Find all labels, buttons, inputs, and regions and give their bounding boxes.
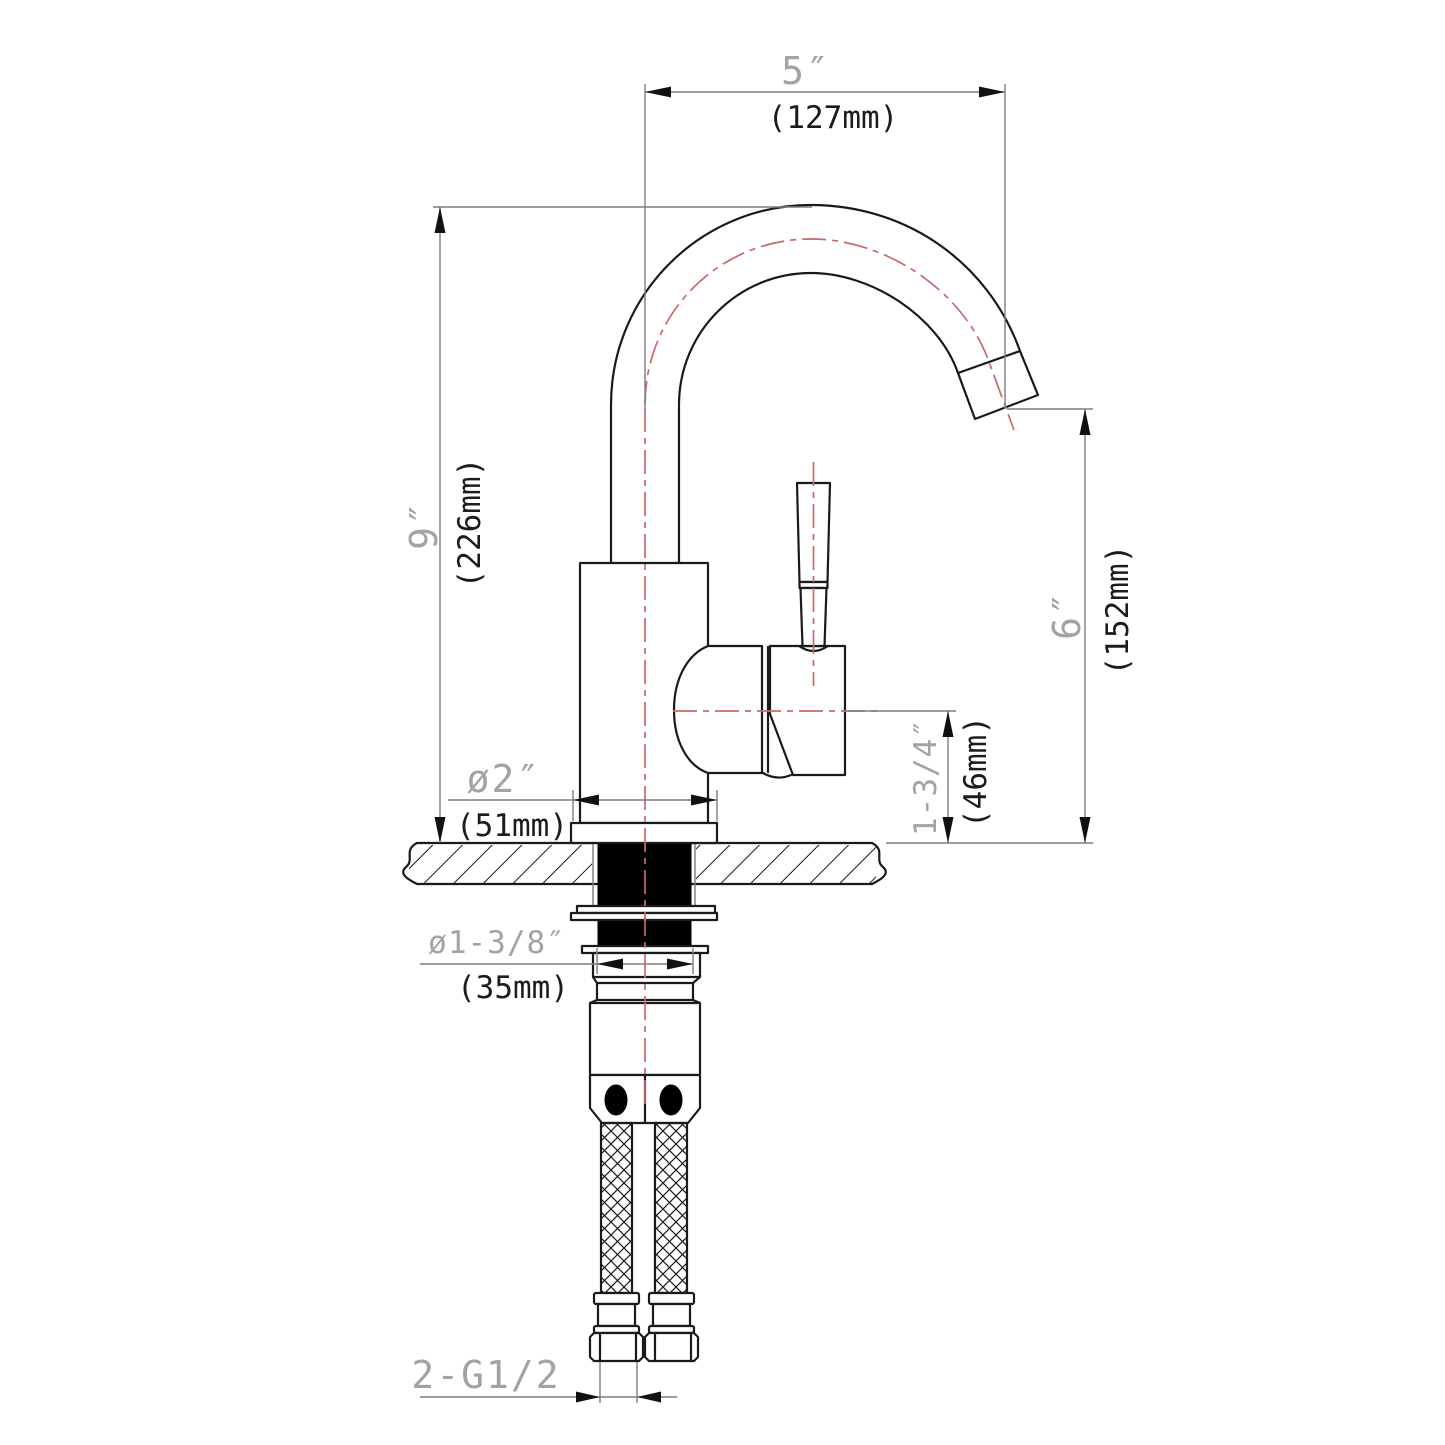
hose-left xyxy=(601,1123,632,1293)
inlet-port-right xyxy=(660,1085,682,1115)
hose-fitting-right xyxy=(645,1293,698,1361)
counter-hatch-left xyxy=(409,845,592,883)
inlet-port-left xyxy=(605,1085,627,1115)
washer-lower xyxy=(571,913,717,920)
supply-thread-label: 2-G1/2 xyxy=(411,1353,560,1397)
base-diameter-inch-label: ø2″ xyxy=(467,757,542,801)
handle-height-inch-label: 1-3/4″ xyxy=(908,718,944,836)
base-flange xyxy=(571,823,717,843)
shank-diameter-inch-label: ø1-3/8″ xyxy=(428,925,566,961)
counter-hatch-right xyxy=(696,845,876,883)
overall-height-inch-label: 9″ xyxy=(402,500,446,550)
shank-diameter-mm-label: (35mm) xyxy=(457,970,569,1006)
faucet-technical-drawing: 5″ (127mm) 9″ (226mm) 6″ (152mm) 1-3/4″ … xyxy=(0,0,1445,1445)
base-diameter-mm-label: (51mm) xyxy=(456,808,568,844)
spout-reach-inch-label: 5″ xyxy=(781,49,831,93)
hose-fitting-left xyxy=(590,1293,643,1361)
overall-height-mm-label: (226mm) xyxy=(452,458,488,589)
outlet-height-mm-label: (152mm) xyxy=(1100,545,1136,676)
valve-ball xyxy=(674,646,762,773)
hose-right xyxy=(655,1123,687,1293)
spout-reach-mm-label: (127mm) xyxy=(768,100,899,136)
outlet-height-inch-label: 6″ xyxy=(1045,590,1089,640)
handle-height-mm-label: (46mm) xyxy=(958,716,994,828)
